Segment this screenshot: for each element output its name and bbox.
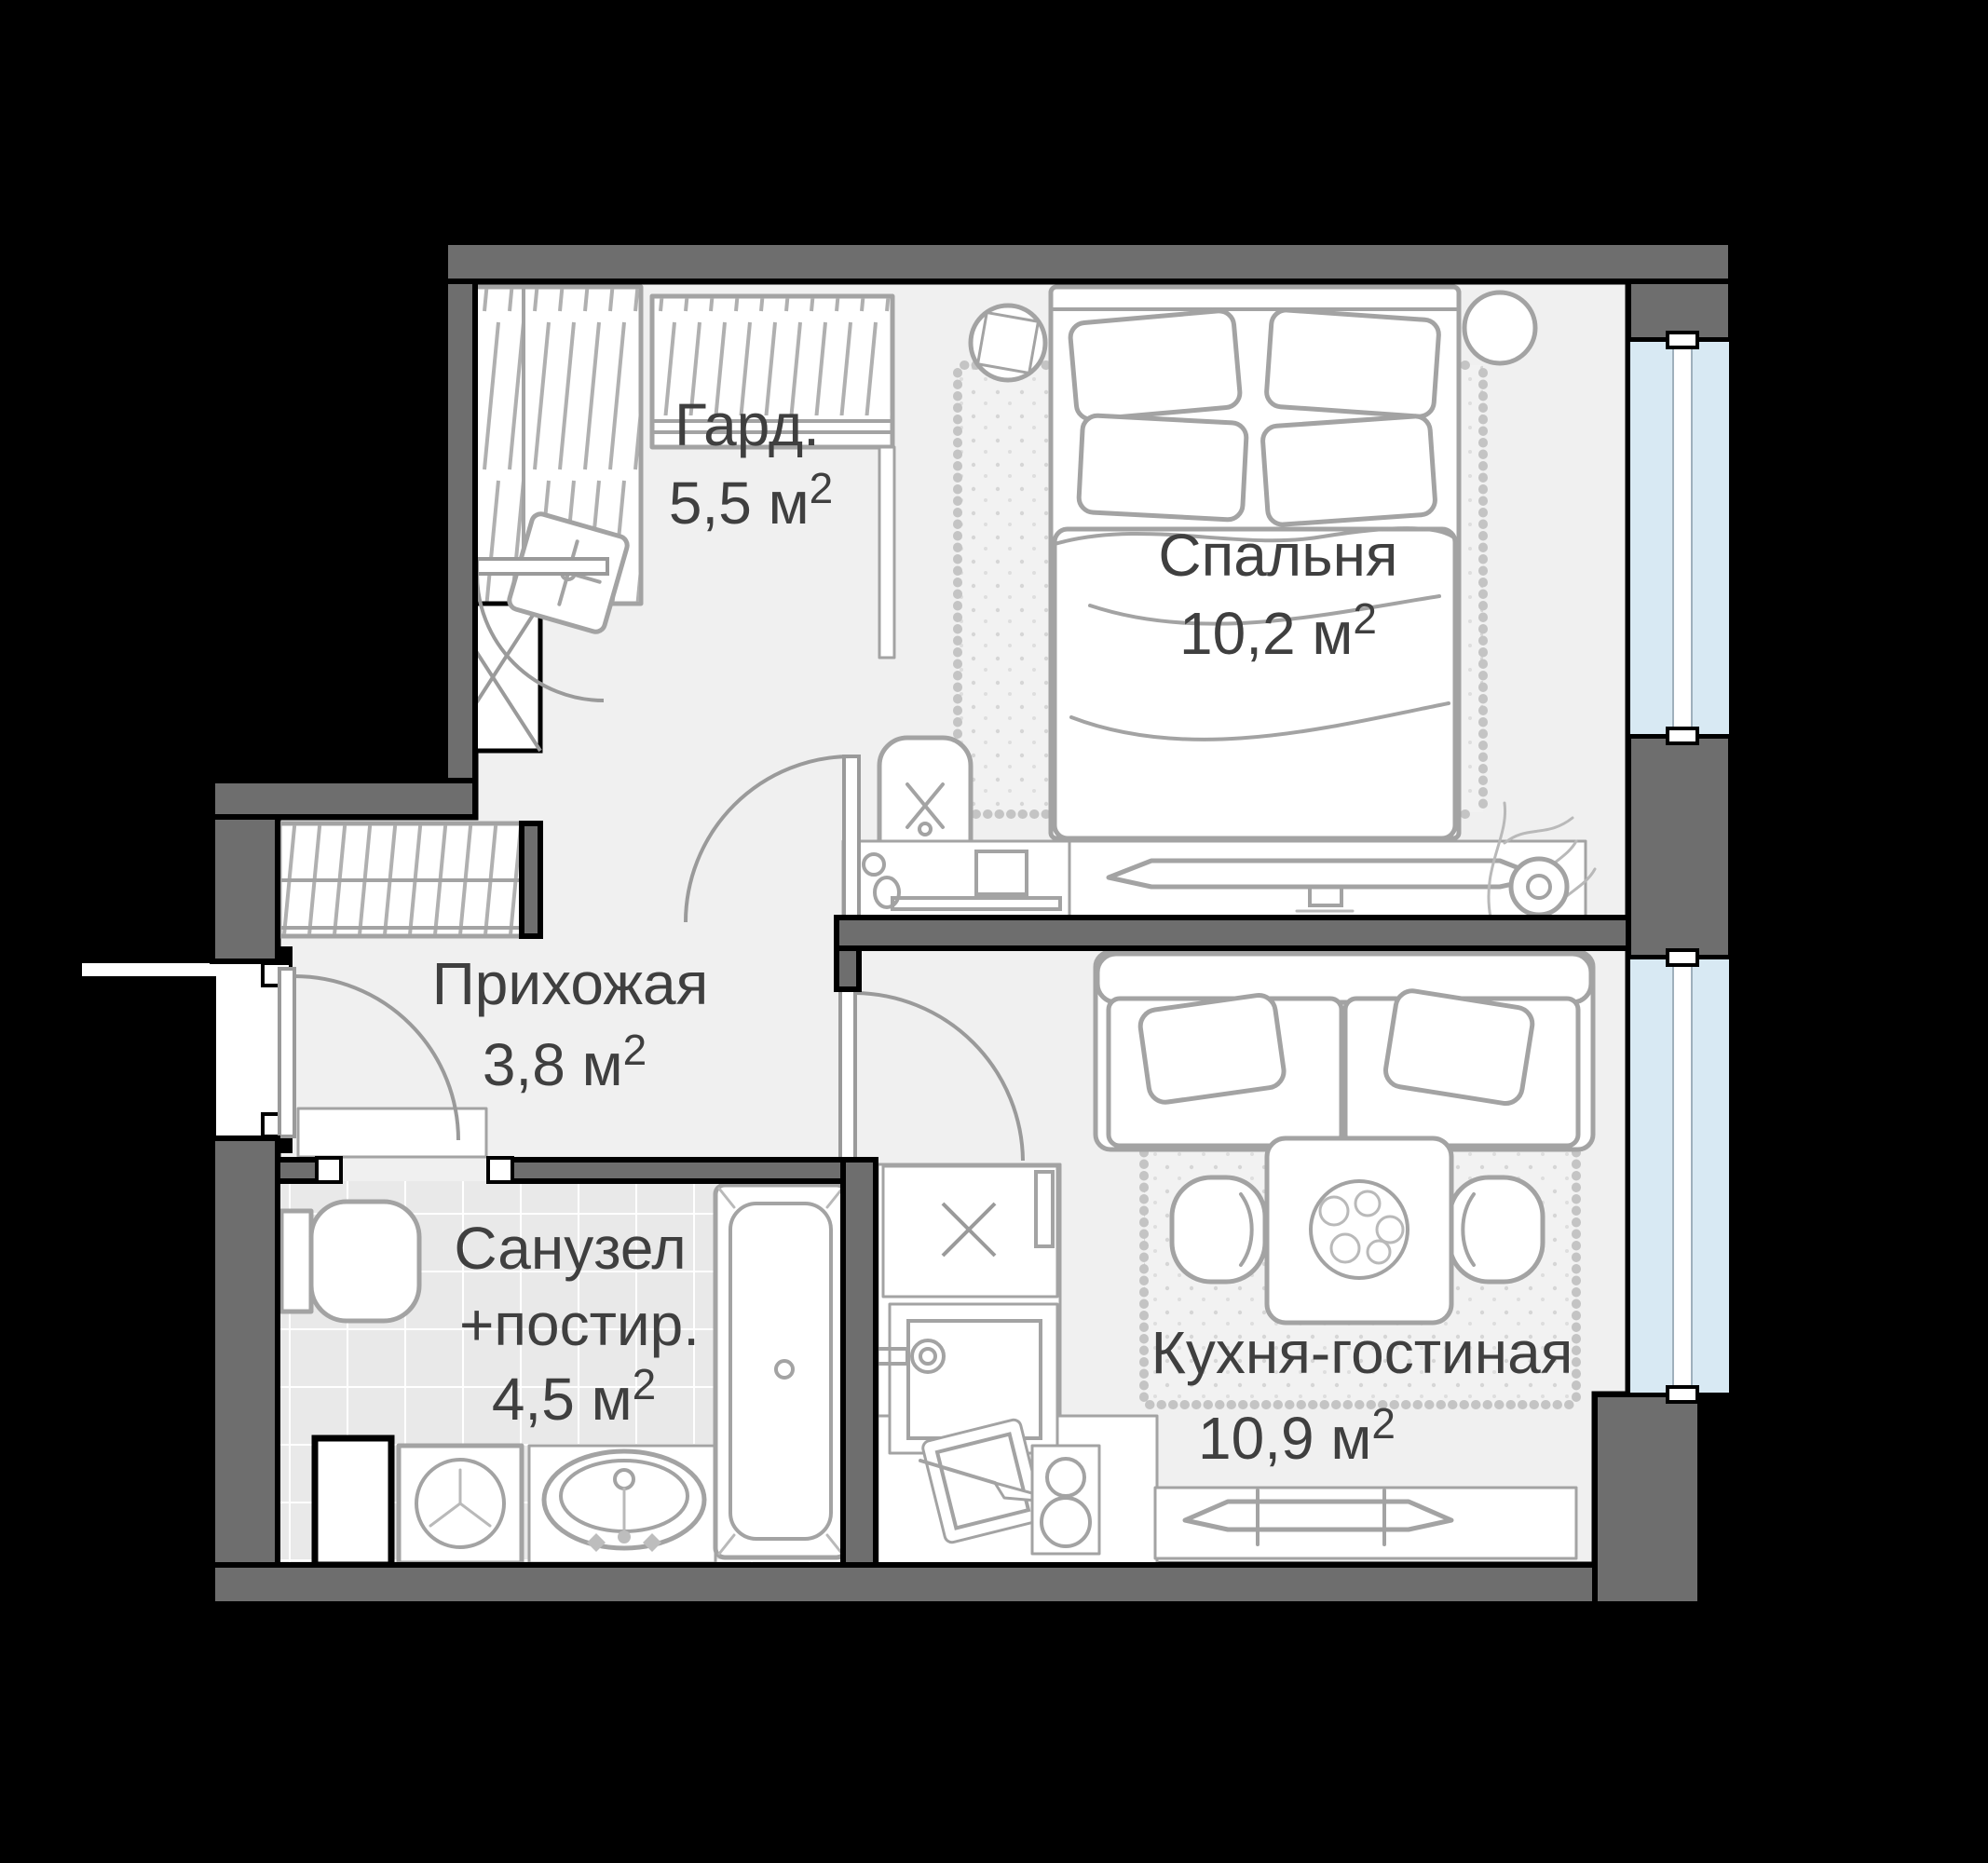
wall-south-hallway — [494, 1160, 876, 1181]
wardrobe-area-value: 5,5 м — [669, 469, 810, 537]
sofa-pillow — [1383, 988, 1534, 1106]
kitchen-living-area-value: 10,9 м — [1198, 1405, 1371, 1472]
wall-kitchen-west — [843, 1160, 876, 1565]
dining-table — [1267, 1138, 1451, 1323]
hallway-area-sup: 2 — [623, 1026, 647, 1074]
bathtub — [715, 1185, 846, 1557]
floorplan-stage: Гард. 5,5 м2 Спальня 10,2 м2 Прихожая 3,… — [0, 0, 1988, 1863]
pillow — [1078, 415, 1246, 520]
dining-chair-right — [1450, 1177, 1543, 1282]
sofa-pillow — [1138, 993, 1286, 1104]
coat-closet — [279, 823, 522, 936]
wall-right-pier — [1628, 736, 1731, 958]
bathroom-area-sup: 2 — [633, 1360, 657, 1408]
wall-top — [445, 242, 1731, 281]
entry-threshold — [82, 963, 216, 976]
hallway-label: Прихожая — [432, 950, 709, 1017]
entry-opening — [216, 961, 278, 1138]
toilet — [281, 1202, 419, 1321]
kitchen-living-label: Кухня-гостиная — [1151, 1319, 1573, 1386]
closet-end-panel — [522, 823, 540, 936]
wardrobe-area: 5,5 м2 — [669, 464, 833, 537]
pillow — [1266, 309, 1440, 417]
wall-divider-stub — [837, 948, 859, 989]
kitchen-living-area-sup: 2 — [1371, 1399, 1396, 1448]
bathroom-label: Санузел — [454, 1215, 686, 1282]
bedroom-label: Спальня — [1158, 522, 1397, 589]
bedroom-tv-console — [1069, 841, 1586, 918]
pillow — [1069, 310, 1241, 421]
bathroom-sink — [529, 1446, 715, 1563]
bathroom-area-value: 4,5 м — [492, 1366, 633, 1433]
pillow — [1262, 415, 1437, 525]
wardrobe-label: Гард. — [674, 391, 820, 458]
desk — [843, 841, 1069, 918]
wall-left-mid — [212, 817, 278, 961]
round-nightstand — [1464, 292, 1535, 363]
wall-right-bottom — [1595, 1394, 1700, 1604]
sofa — [1096, 952, 1593, 1149]
floorplan-svg: Гард. 5,5 м2 Спальня 10,2 м2 Прихожая 3,… — [0, 0, 1988, 1863]
wall-step — [212, 781, 475, 817]
washing-machine — [399, 1446, 522, 1563]
bedroom-window — [1628, 333, 1731, 743]
square-nightstand — [971, 306, 1045, 380]
bathroom-label-line2: +постир. — [459, 1291, 700, 1358]
wardrobe-area-sup: 2 — [810, 464, 834, 512]
vent-shaft — [315, 1438, 391, 1565]
wall-bottom — [212, 1565, 1700, 1604]
bedroom-area-sup: 2 — [1353, 594, 1377, 643]
kitchen-living-area: 10,9 м2 — [1198, 1399, 1396, 1472]
wall-bedroom-divider — [837, 918, 1628, 948]
dining-chair-left — [1172, 1177, 1265, 1282]
tv-panel — [1185, 1502, 1451, 1530]
kitchen-hob — [883, 1166, 1057, 1297]
wall-left-upper — [445, 281, 475, 781]
bathroom-area: 4,5 м2 — [492, 1360, 656, 1433]
living-tv-console — [1155, 1488, 1576, 1558]
oven-burners — [1032, 1446, 1099, 1554]
hallway-area: 3,8 м2 — [483, 1026, 647, 1098]
tv-panel — [1109, 861, 1543, 887]
bedroom-area-value: 10,2 м — [1179, 600, 1353, 667]
hallway-area-value: 3,8 м — [483, 1031, 623, 1098]
wall-left-lower — [212, 1138, 278, 1565]
bedroom-area: 10,2 м2 — [1179, 594, 1377, 667]
living-window — [1628, 950, 1731, 1402]
